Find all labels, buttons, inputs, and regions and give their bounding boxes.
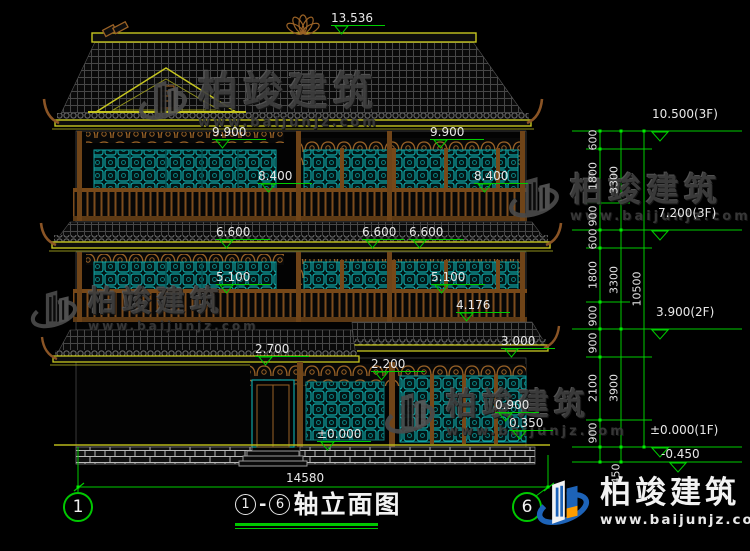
title-underline-thin: [235, 528, 378, 529]
elevation-drawing: [0, 0, 750, 551]
title-axis-from-bubble: 1: [235, 494, 256, 515]
plinth: [76, 447, 535, 466]
roof-2f: [41, 222, 561, 251]
center-lattice-window: [306, 382, 384, 440]
axis-bubble-1: 1: [63, 492, 93, 522]
title-separator: -: [259, 496, 266, 514]
cad-elevation-canvas: 柏竣建筑 www.baijunjz.com 柏竣建筑 www.baijunjz.…: [0, 0, 750, 551]
title-text: 轴立面图: [293, 492, 401, 517]
title-underline: [235, 523, 378, 526]
drawing-title: 1 - 6 轴立面图: [235, 492, 402, 517]
entry-door: [252, 380, 294, 447]
axis-bubble-6: 6: [512, 492, 542, 522]
title-axis-to-bubble: 6: [269, 494, 290, 515]
entry-steps: [239, 451, 307, 466]
floor-2f: [73, 252, 527, 322]
roof-3f: [44, 15, 542, 129]
